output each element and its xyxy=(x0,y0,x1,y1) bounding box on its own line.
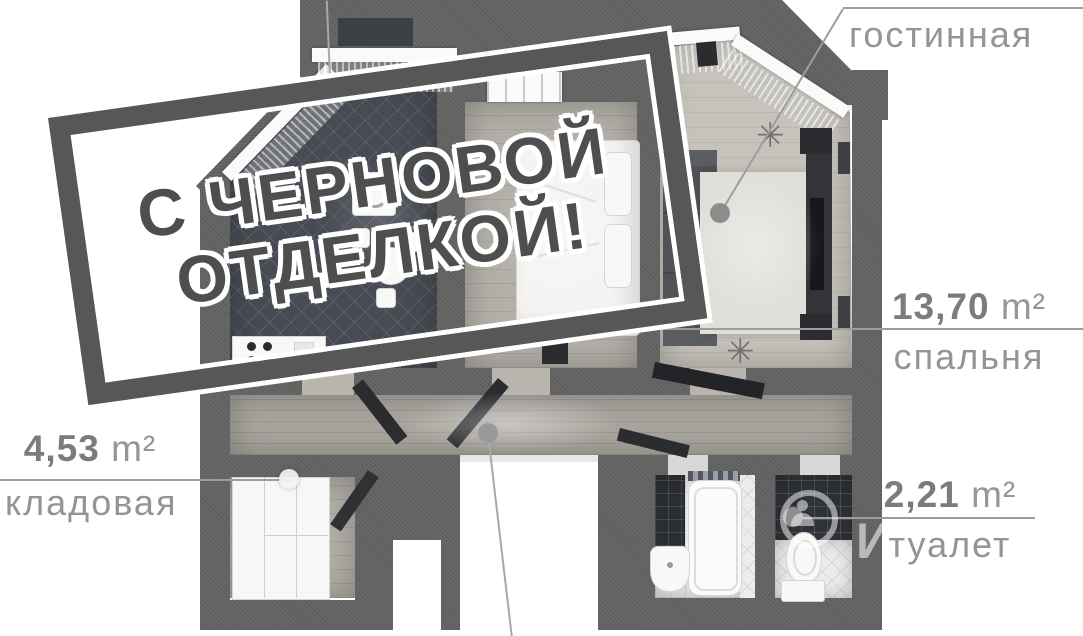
wall-bottom-left xyxy=(200,600,385,630)
leader-dot-living xyxy=(710,203,730,223)
bathtub-inner xyxy=(694,487,738,591)
speaker-box xyxy=(800,128,832,154)
bedroom-area: 13,70 m² xyxy=(855,286,1083,328)
plant-icon: ✳ xyxy=(756,116,785,156)
kitchen-window-glass xyxy=(338,18,413,46)
storage-name: кладовая xyxy=(5,482,175,524)
watermark: И xyxy=(772,468,892,578)
label-storage: 4,53 m² кладовая xyxy=(5,428,175,524)
label-bedroom: 13,70 m² спальня xyxy=(855,286,1083,378)
wardrobe-door-line xyxy=(264,477,265,598)
sink-drain xyxy=(667,562,673,568)
wall-bottom-right xyxy=(598,598,882,630)
speaker-box xyxy=(800,314,832,340)
plant-icon: ✳ xyxy=(726,332,755,372)
corridor-floor xyxy=(230,395,852,455)
watermark-letter: И xyxy=(856,512,892,570)
wall-picture-frame xyxy=(838,142,850,174)
bathroom-sink xyxy=(650,546,690,592)
storage-area: 4,53 m² xyxy=(5,428,175,470)
kitchen-top-window xyxy=(312,48,457,62)
living-room-name: гостинная xyxy=(843,14,1083,56)
niche-opening xyxy=(393,540,441,630)
watermark-person-head xyxy=(797,500,808,511)
wall-corridor-top-bedroom xyxy=(437,368,665,395)
toilet-tank xyxy=(781,580,825,602)
wardrobe-door-line xyxy=(296,477,297,598)
stamp-text: С ЧЕРНОВОЙ ОТДЕЛКОЙ! xyxy=(133,115,622,322)
leader-dot-storage xyxy=(279,469,299,489)
tv-screen xyxy=(810,198,824,290)
rug xyxy=(700,172,808,334)
living-wall-picture xyxy=(696,41,718,67)
wall-right-step xyxy=(852,70,888,120)
floorplan-screenshot: ✳ ✳ гостинная xyxy=(0,0,1083,636)
wardrobe-shelf-line xyxy=(264,535,328,536)
wall-picture-frame xyxy=(838,296,850,330)
leader-living-underline xyxy=(843,7,1083,9)
wardrobe xyxy=(232,477,330,600)
leader-dot-corridor xyxy=(478,423,498,443)
bedroom-name: спальня xyxy=(855,336,1083,378)
entry-threshold xyxy=(460,455,598,462)
label-living-room: гостинная xyxy=(843,14,1083,56)
bathroom-corner-tiles xyxy=(740,475,755,598)
